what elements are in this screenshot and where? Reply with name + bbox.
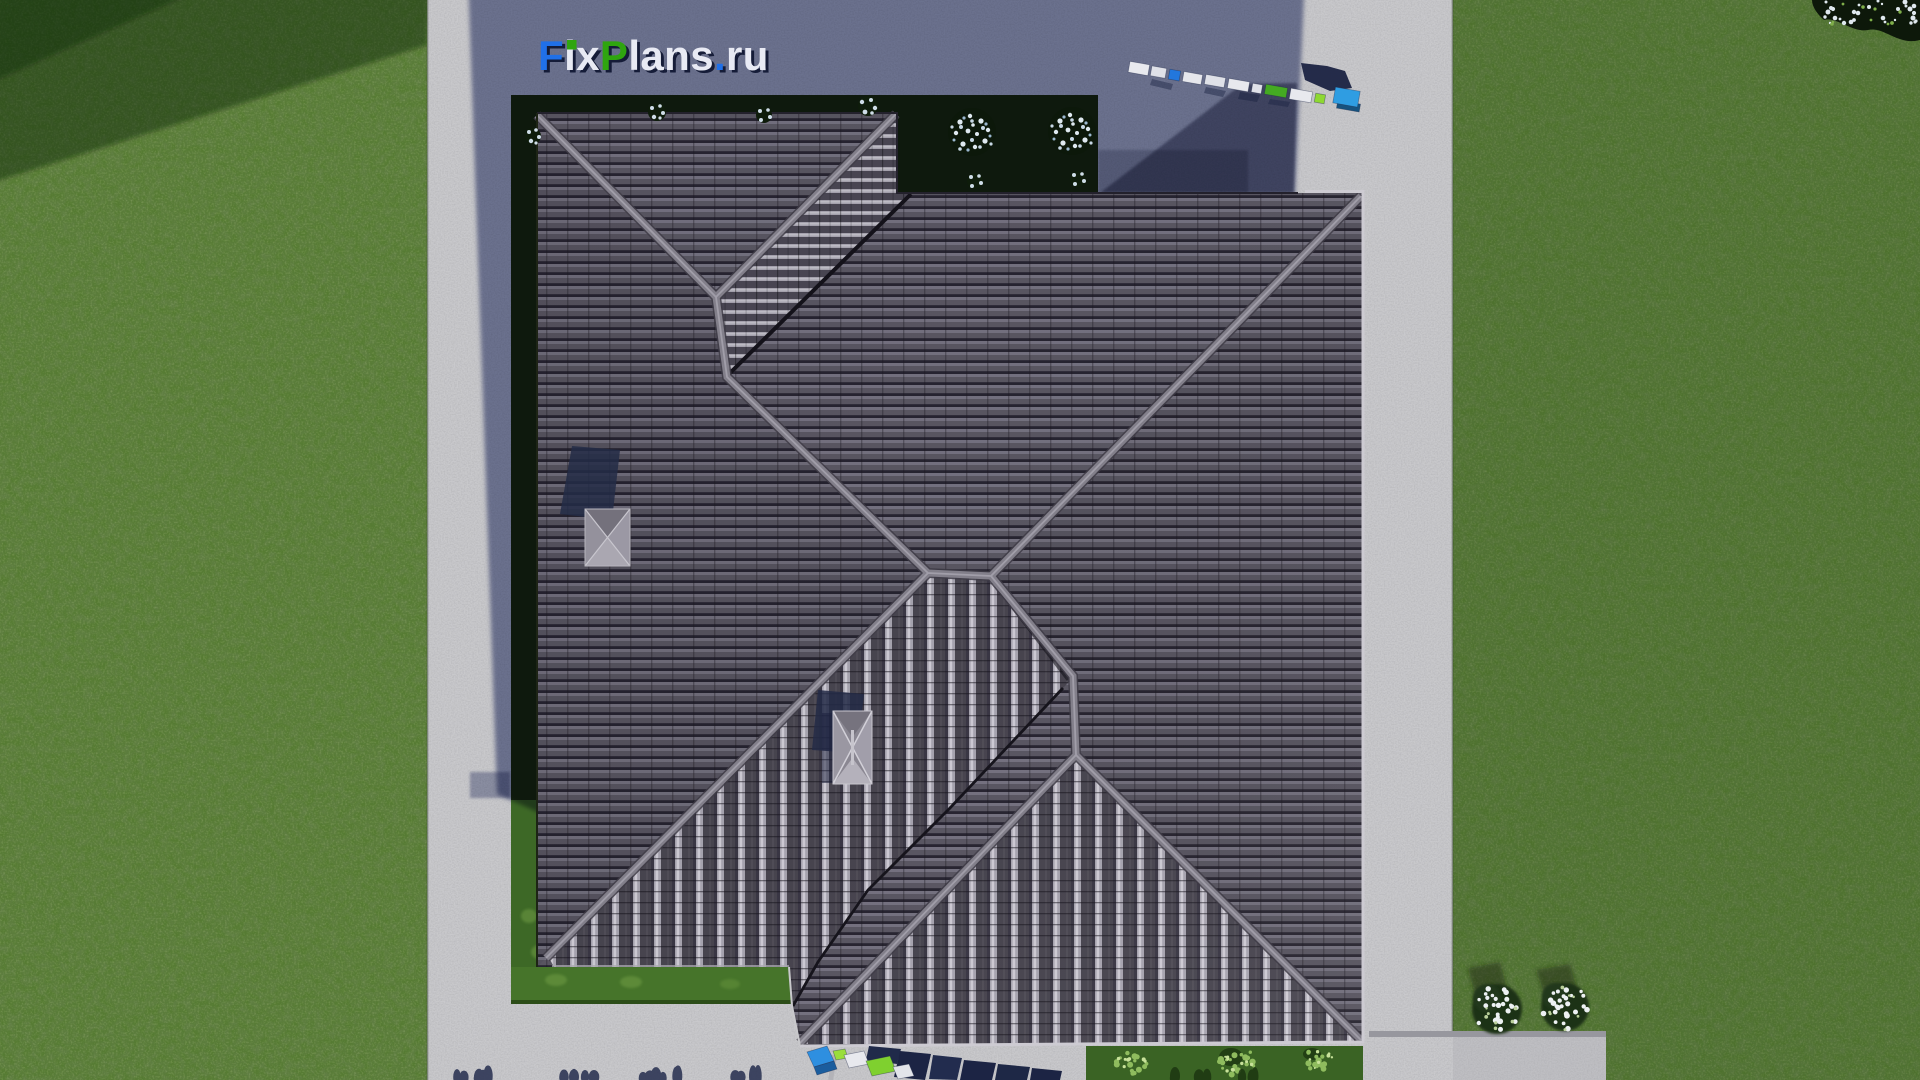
svg-text:FixPlans.ru: FixPlans.ru	[538, 32, 769, 79]
